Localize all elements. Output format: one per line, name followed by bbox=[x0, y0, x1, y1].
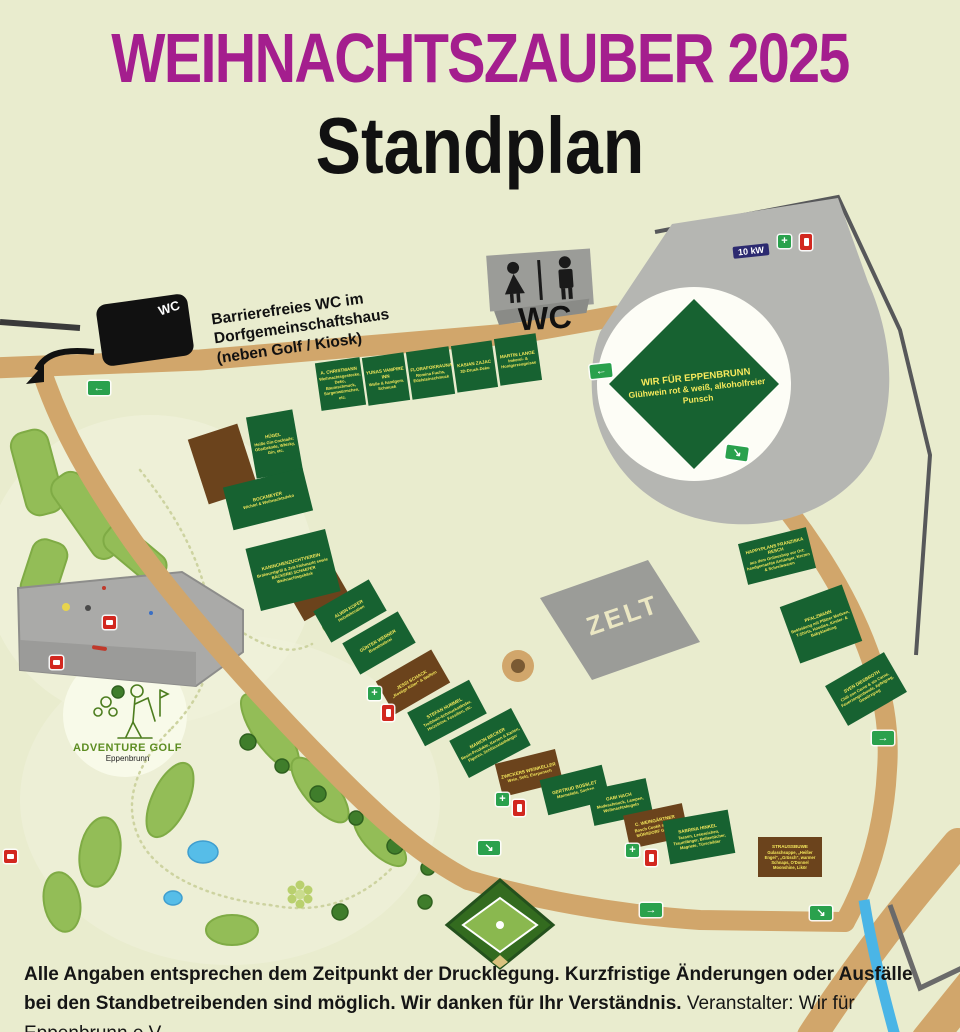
cross-glyph: + bbox=[371, 688, 377, 699]
arrow-glyph: → bbox=[878, 733, 889, 744]
emergency-exit-icon: ← bbox=[589, 363, 612, 379]
first-aid-icon: + bbox=[626, 844, 639, 857]
cross-glyph: + bbox=[629, 845, 635, 856]
accessible-wc-sign: WC bbox=[95, 293, 195, 367]
hydrant-icon bbox=[50, 656, 63, 669]
roundabout bbox=[502, 650, 534, 682]
arrow-glyph: ← bbox=[595, 365, 607, 377]
adventure-golf-logo: ADVENTURE GOLF Eppenbrunn bbox=[55, 742, 200, 763]
emergency-exit-icon: ← bbox=[88, 381, 110, 395]
stand-martin-lange: MARTIN LANGE Imkerei- & Honigerzeugnisse bbox=[494, 333, 542, 385]
stand-straussbuwe: STRAUSSBUWE Gulaschsuppe, „Heißer Engel“… bbox=[758, 837, 822, 877]
arrow-glyph: → bbox=[646, 905, 657, 916]
cross-glyph: + bbox=[781, 236, 787, 247]
hydrant-icon bbox=[103, 616, 116, 629]
arrow-glyph: ↘ bbox=[816, 908, 825, 919]
road-stub bbox=[0, 322, 80, 328]
emergency-exit-icon: ↘ bbox=[478, 841, 500, 855]
first-aid-icon: + bbox=[368, 687, 381, 700]
site-map: WEIHNACHTSZAUBER 2025 Standplan WC Barri… bbox=[0, 0, 960, 1032]
fire-extinguisher-icon bbox=[382, 705, 394, 721]
emergency-exit-icon: ↘ bbox=[810, 906, 832, 920]
stand-yunas-vampire-inn: YUNAS VAMPIRE INN Wolle & handgem. Schmu… bbox=[362, 352, 410, 405]
golf-logo-subtitle: Eppenbrunn bbox=[55, 754, 200, 763]
emergency-exit-icon: → bbox=[872, 731, 894, 745]
stand-desc: Weihnachtsgestecke, Deko, Baumschmuck, S… bbox=[319, 371, 363, 402]
stand-kasian-zajac: KASIAN ZAJAC 3D-Druck-Deko bbox=[451, 340, 498, 392]
hydrant-icon bbox=[4, 850, 17, 863]
arrow-glyph: ↘ bbox=[484, 843, 493, 854]
fire-extinguisher-icon bbox=[800, 234, 812, 250]
arrow-glyph: ← bbox=[94, 383, 105, 394]
cross-glyph: + bbox=[499, 794, 505, 805]
wc-label: WC bbox=[504, 298, 586, 339]
disclaimer: Alle Angaben entsprechen dem Zeitpunkt d… bbox=[24, 960, 944, 1032]
stand-desc: Gulaschsuppe, „Heißer Engel“, „Grüsch“, … bbox=[760, 850, 820, 870]
emergency-exit-icon: ↘ bbox=[725, 445, 749, 462]
first-aid-icon: + bbox=[496, 793, 509, 806]
page-subtitle: Standplan bbox=[72, 100, 888, 192]
disclaimer-line2-bold: bei den Standbetreibenden sind möglich. … bbox=[24, 993, 687, 1014]
fire-extinguisher-icon bbox=[645, 850, 657, 866]
first-aid-icon: + bbox=[778, 235, 791, 248]
stand-a-christmann: A. CHRISTMANN Weihnachtsgestecke, Deko, … bbox=[315, 357, 366, 411]
disclaimer-line1: Alle Angaben entsprechen dem Zeitpunkt d… bbox=[24, 960, 944, 989]
arrow-glyph: ↘ bbox=[732, 447, 743, 459]
golf-logo-title: ADVENTURE GOLF bbox=[55, 742, 200, 754]
stand-florafokrauna: FLORAFOKRAUNA Romina Fuchs, Edelsteinsch… bbox=[406, 346, 455, 400]
wc-sign-text: WC bbox=[157, 297, 182, 318]
fire-extinguisher-icon bbox=[513, 800, 525, 816]
emergency-exit-icon: → bbox=[640, 903, 662, 917]
page-title: WEIHNACHTSZAUBER 2025 bbox=[86, 18, 873, 98]
